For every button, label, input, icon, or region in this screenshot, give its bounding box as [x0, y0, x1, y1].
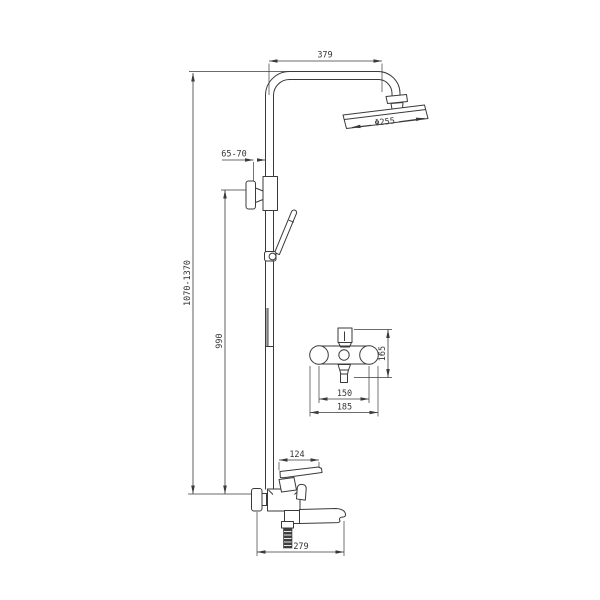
- lever-base: [279, 478, 297, 493]
- mixer-handle-lever: [280, 467, 322, 478]
- dim-label-spout-reach: 279: [293, 542, 308, 552]
- dim-label-head-diameter: Φ255: [374, 116, 395, 128]
- dim-label-hole-spacing: 150: [337, 389, 352, 399]
- diverter-knob: [296, 484, 308, 500]
- dim-label-wall-offset: 65-70: [221, 150, 247, 160]
- bracket-flange: [246, 181, 256, 209]
- dim-mixer-width: 185: [310, 403, 378, 413]
- hand-shower-wand: [275, 210, 297, 255]
- valve-cartridge: [339, 350, 349, 360]
- holder-ring: [269, 253, 276, 260]
- dim-wall-offset: 65-70: [221, 150, 265, 185]
- mixer-valve-detail: 165 150 185: [310, 328, 392, 417]
- wall-bracket: [246, 177, 278, 211]
- bracket-cone: [256, 188, 264, 203]
- dim-label-arm-reach: 379: [317, 51, 332, 61]
- dim-overall-height: 1070-1370: [183, 72, 296, 495]
- shower-arm: [265, 72, 407, 110]
- threaded-shank: [284, 528, 293, 548]
- dim-label-handle-length: 124: [289, 450, 304, 460]
- dim-arm-reach: 379: [269, 51, 382, 96]
- dim-label-mixer-height: 165: [378, 346, 388, 361]
- bracket-collar: [263, 177, 278, 211]
- dim-hole-spacing: 150: [319, 389, 369, 399]
- arm-nut: [386, 95, 408, 104]
- dim-riser-height: 990: [215, 190, 247, 494]
- pole-slide-rail: [266, 308, 268, 346]
- rain-shower-head: Φ255: [343, 105, 428, 129]
- hand-shower: [265, 210, 297, 261]
- dim-label-mixer-width: 185: [337, 403, 352, 413]
- mixer-body: [268, 489, 301, 511]
- dim-label-overall-height: 1070-1370: [183, 260, 193, 306]
- valve-outlet-tip: [341, 374, 348, 383]
- shank-collar: [282, 522, 294, 529]
- valve-body: [310, 328, 379, 383]
- mixer-wall-flange: [252, 489, 263, 512]
- valve-outlet: [338, 365, 351, 375]
- shower-fixture: Φ255: [246, 72, 428, 549]
- valve-flange-right: [360, 346, 379, 365]
- technical-drawing-page: 379 1070-1370 990 65-70 124: [0, 0, 600, 600]
- dim-label-riser-height: 990: [215, 333, 225, 348]
- tub-spout: [300, 509, 346, 524]
- shower-system-diagram: 379 1070-1370 990 65-70 124: [0, 0, 600, 600]
- riser-pole: [266, 96, 274, 490]
- valve-flange-left: [310, 346, 329, 365]
